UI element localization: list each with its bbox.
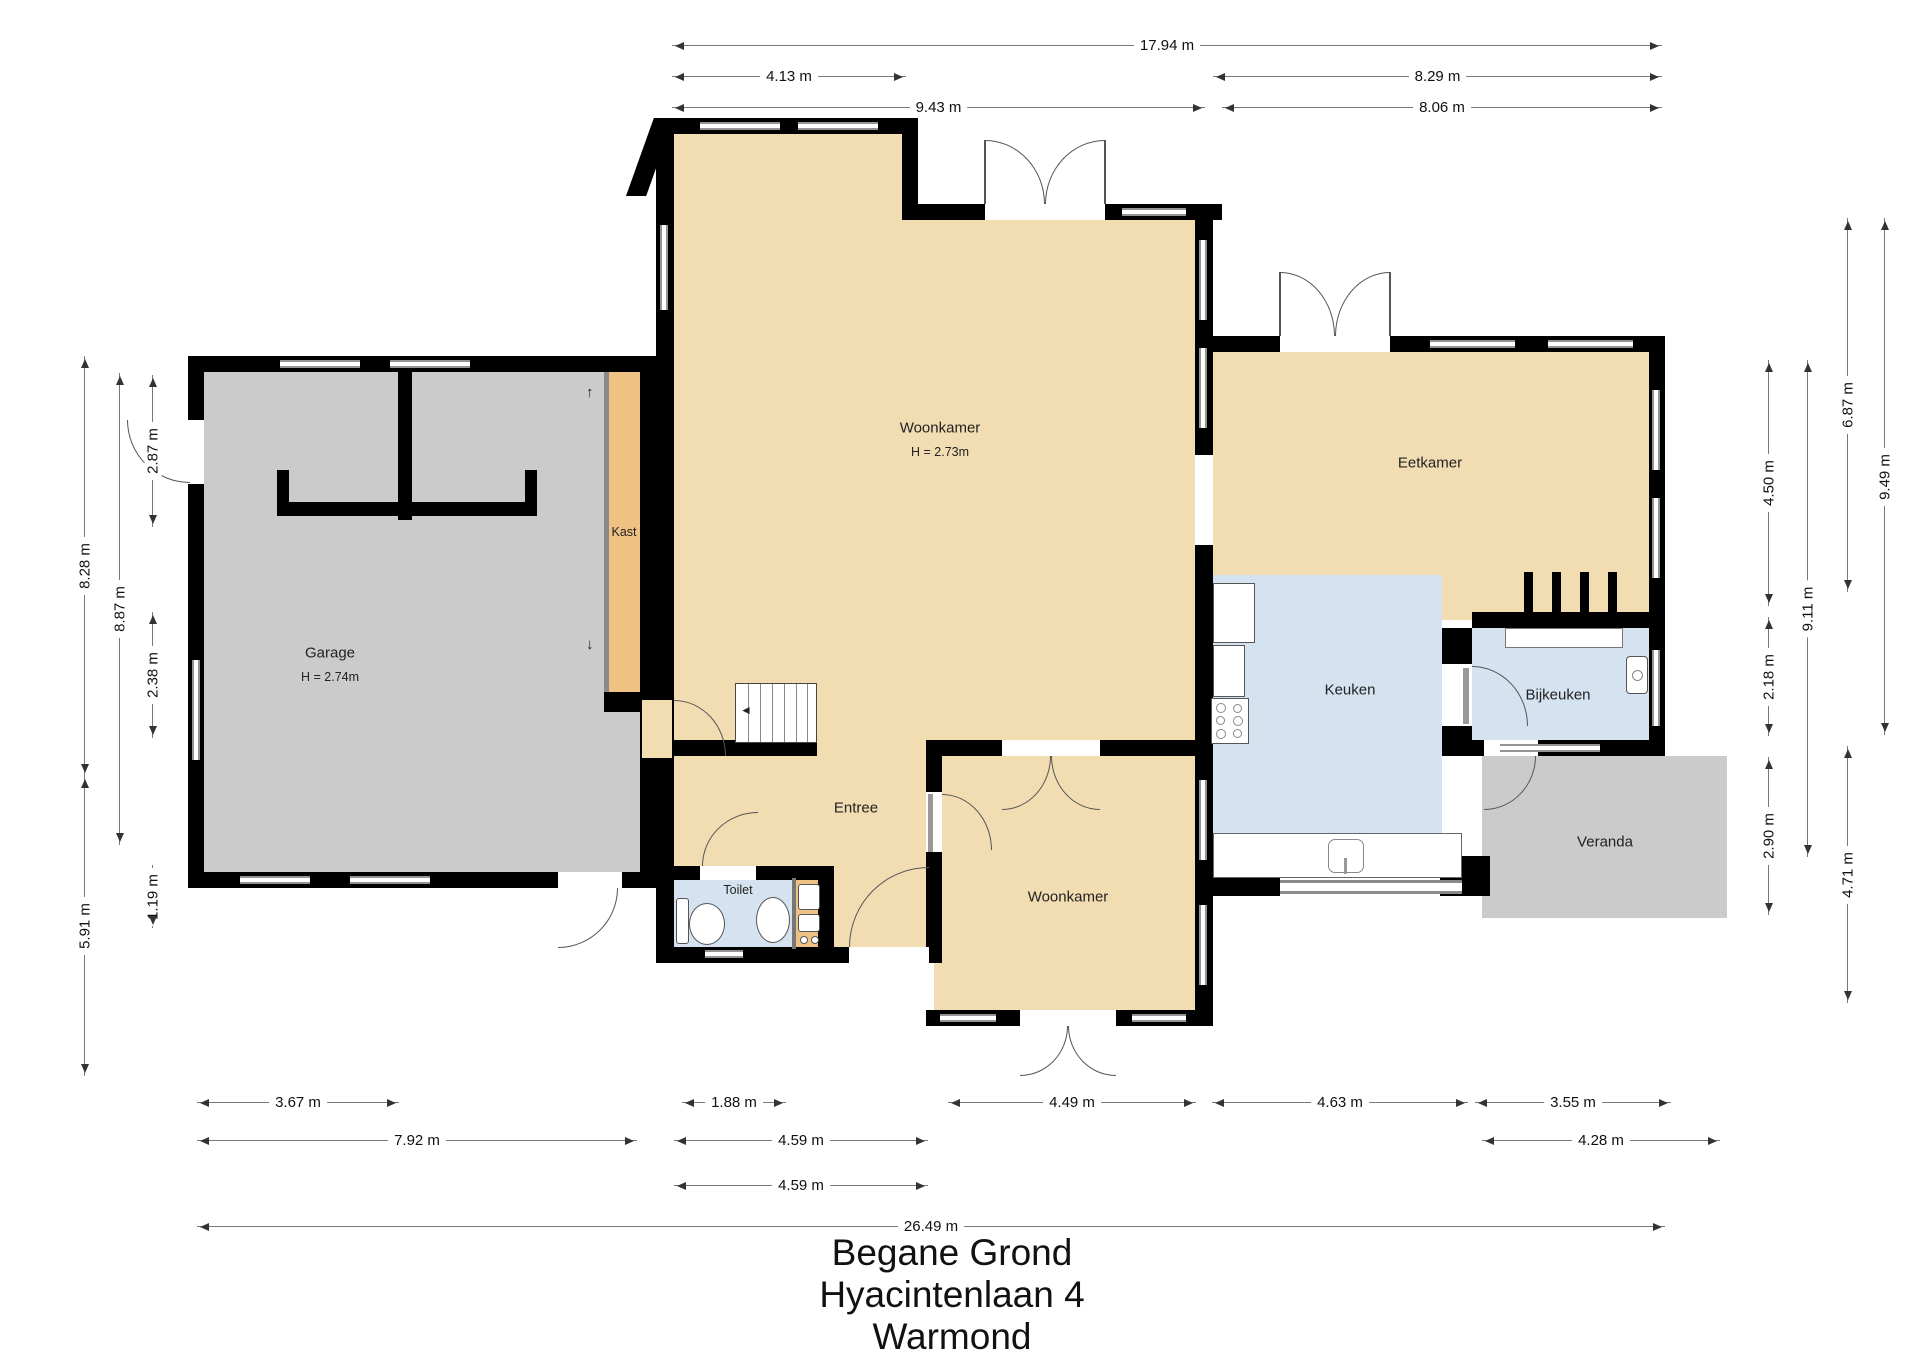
window [798, 122, 878, 130]
dim-bottom-keuken: 4.63 m [1212, 1102, 1468, 1103]
dim-top-left: 4.13 m [672, 76, 906, 77]
wall-garage-bar-left [277, 470, 289, 516]
stairs-direction-icon: ◄ [740, 703, 752, 717]
door-arc-eetkamer-right [1335, 272, 1390, 336]
room-label-woonkamer-main: Woonkamer [900, 420, 981, 437]
dim-bottom-entree: 4.59 m [674, 1140, 928, 1141]
room-label-keuken: Keuken [1325, 682, 1376, 699]
opening-garage-side-door [188, 420, 204, 484]
window [1132, 1014, 1186, 1022]
dim-right-total: 9.49 m [1884, 218, 1885, 735]
wall-central-top-left [656, 118, 918, 134]
dim-top-right: 8.29 m [1213, 76, 1662, 77]
door-arc-woonkamer2-bottom-left [1020, 1026, 1068, 1076]
wall-garage-bar [277, 502, 537, 516]
door-leaf [1463, 668, 1469, 724]
room-label-bijkeuken: Bijkeuken [1525, 687, 1590, 704]
door-leaf [1279, 272, 1281, 336]
wall-bijkeuken-top [1472, 612, 1665, 628]
toilet-sink [756, 897, 790, 943]
door-arc-garage-back [558, 888, 618, 948]
room-label-eetkamer: Eetkamer [1398, 455, 1462, 472]
window [390, 360, 470, 368]
wall-kast-right [640, 356, 656, 888]
dim-bottom-entree-2: 4.59 m [674, 1185, 928, 1186]
opening-top-double-door [985, 204, 1105, 220]
dim-left-lower: 5.91 m [84, 776, 85, 1076]
kast-divider [604, 372, 609, 692]
window [1199, 905, 1207, 985]
dim-left-seg-bottom: 1.19 m [152, 865, 153, 928]
dim-right-upper: 6.87 m [1847, 218, 1848, 592]
dim-left-seg-mid: 2.38 m [152, 612, 153, 738]
window [350, 876, 430, 884]
room-fill-woonkamer-top [664, 126, 910, 220]
floor-plan: ↑ ↓ ◄ Woonkamer H = 2.73m Garage H = 2.7… [0, 0, 1920, 1358]
kitchen-cabinet [1213, 645, 1245, 697]
window [660, 225, 668, 310]
room-height-woonkamer-main: H = 2.73m [911, 445, 969, 459]
opening-woonkamer2-bottom [1020, 1010, 1116, 1026]
room-fill-garage-ext [604, 712, 640, 872]
sliding-door-down-icon: ↓ [586, 636, 594, 653]
window [705, 950, 743, 958]
door-leaf [984, 140, 986, 204]
dim-right-seg-top: 4.50 m [1768, 360, 1769, 606]
dim-top-right-width: 8.06 m [1222, 107, 1662, 108]
window [1122, 208, 1186, 216]
wall-garage-pier [398, 356, 412, 520]
opening-front-door [849, 947, 929, 963]
room-label-entree: Entree [834, 800, 878, 817]
dim-left-inner: 8.87 m [119, 373, 120, 845]
window [1652, 650, 1660, 726]
bijkeuken-sink [1626, 656, 1648, 694]
wall-tick-2 [1552, 572, 1561, 612]
wall-tick-4 [1608, 572, 1617, 612]
dim-top-center-width: 9.43 m [672, 107, 1205, 108]
wall-closet-right [818, 866, 834, 963]
room-label-garage: Garage [305, 645, 355, 662]
dim-bottom-entree-seg: 1.88 m [682, 1102, 786, 1103]
toilet-tank [676, 898, 689, 944]
window [700, 122, 780, 130]
opening-woonkamer-eetkamer [1195, 455, 1213, 545]
dim-bottom-garage: 7.92 m [197, 1140, 637, 1141]
sliding-door-up-icon: ↑ [586, 384, 594, 401]
dim-right-inner: 9.11 m [1807, 360, 1808, 857]
kitchen-tap [1344, 858, 1347, 874]
room-fill-woonkamer-main [664, 212, 1203, 747]
window [1652, 390, 1660, 470]
window [1199, 240, 1207, 320]
door-arc-woonkamer2-bottom-right [1068, 1026, 1116, 1076]
door-leaf [1104, 140, 1106, 204]
title-city: Warmond [819, 1316, 1084, 1358]
wall-garage-bar-right [525, 470, 537, 516]
meter-cabinet [798, 914, 820, 932]
door-arc-double-left [985, 140, 1045, 204]
window [1500, 744, 1600, 752]
room-label-kast: Kast [611, 525, 636, 539]
window [240, 876, 310, 884]
room-height-garage: H = 2.74m [301, 670, 359, 684]
fridge [1213, 583, 1255, 643]
dim-bottom-bijkeuken: 3.55 m [1475, 1102, 1671, 1103]
bijkeuken-counter [1505, 628, 1623, 648]
wall-keuken-bottom [1205, 878, 1280, 896]
dim-bottom-garage-seg: 3.67 m [197, 1102, 399, 1103]
opening-toilet-door [700, 866, 756, 880]
door-leaf [1389, 272, 1391, 336]
toilet-bowl [689, 903, 725, 945]
window [1652, 498, 1660, 578]
title-address: Hyacintenlaan 4 [819, 1274, 1084, 1316]
wall-tick-3 [1580, 572, 1589, 612]
opening-garage-back-door [558, 872, 622, 888]
door-arc-double-right [1045, 140, 1105, 204]
dim-right-seg-bottom: 2.90 m [1768, 757, 1769, 915]
window [192, 660, 200, 760]
dim-right-seg-mid: 2.18 m [1768, 617, 1769, 736]
dim-bottom-woonkamer: 4.49 m [948, 1102, 1196, 1103]
window [280, 360, 360, 368]
toilet-closet-divider [792, 878, 796, 949]
stove [1211, 698, 1249, 744]
meter-gauge [811, 936, 819, 944]
window [1548, 340, 1633, 348]
window [1199, 780, 1207, 860]
dim-top-total: 17.94 m [672, 45, 1662, 46]
dim-bottom-veranda: 4.28 m [1482, 1140, 1720, 1141]
opening-eetkamer-door [1280, 336, 1390, 352]
dim-left-seg-top: 2.87 m [152, 375, 153, 527]
window [940, 1014, 996, 1022]
door-arc-eetkamer-left [1280, 272, 1335, 336]
room-label-veranda: Veranda [1577, 834, 1633, 851]
title-floor: Begane Grond [819, 1232, 1084, 1274]
dim-left-garage: 8.28 m [84, 356, 85, 776]
window [1199, 348, 1207, 428]
window [1430, 340, 1515, 348]
wall-tick-1 [1524, 572, 1533, 612]
room-label-woonkamer2: Woonkamer [1028, 889, 1109, 906]
window-keuken-large [1280, 880, 1462, 894]
meter-cabinet [798, 884, 820, 910]
wall-kast-cap [604, 692, 640, 712]
wall-central-right-spine [1195, 204, 1213, 1026]
door-leaf [928, 794, 933, 852]
dim-right-lower: 4.71 m [1847, 746, 1848, 1003]
plan-title: Begane Grond Hyacintenlaan 4 Warmond [819, 1232, 1084, 1357]
meter-gauge [800, 936, 808, 944]
room-label-toilet: Toilet [723, 883, 752, 897]
opening-woonkamer2-top [1002, 740, 1100, 756]
dim-bottom-total: 26.49 m [197, 1226, 1665, 1227]
opening-garage-entree [642, 700, 672, 758]
